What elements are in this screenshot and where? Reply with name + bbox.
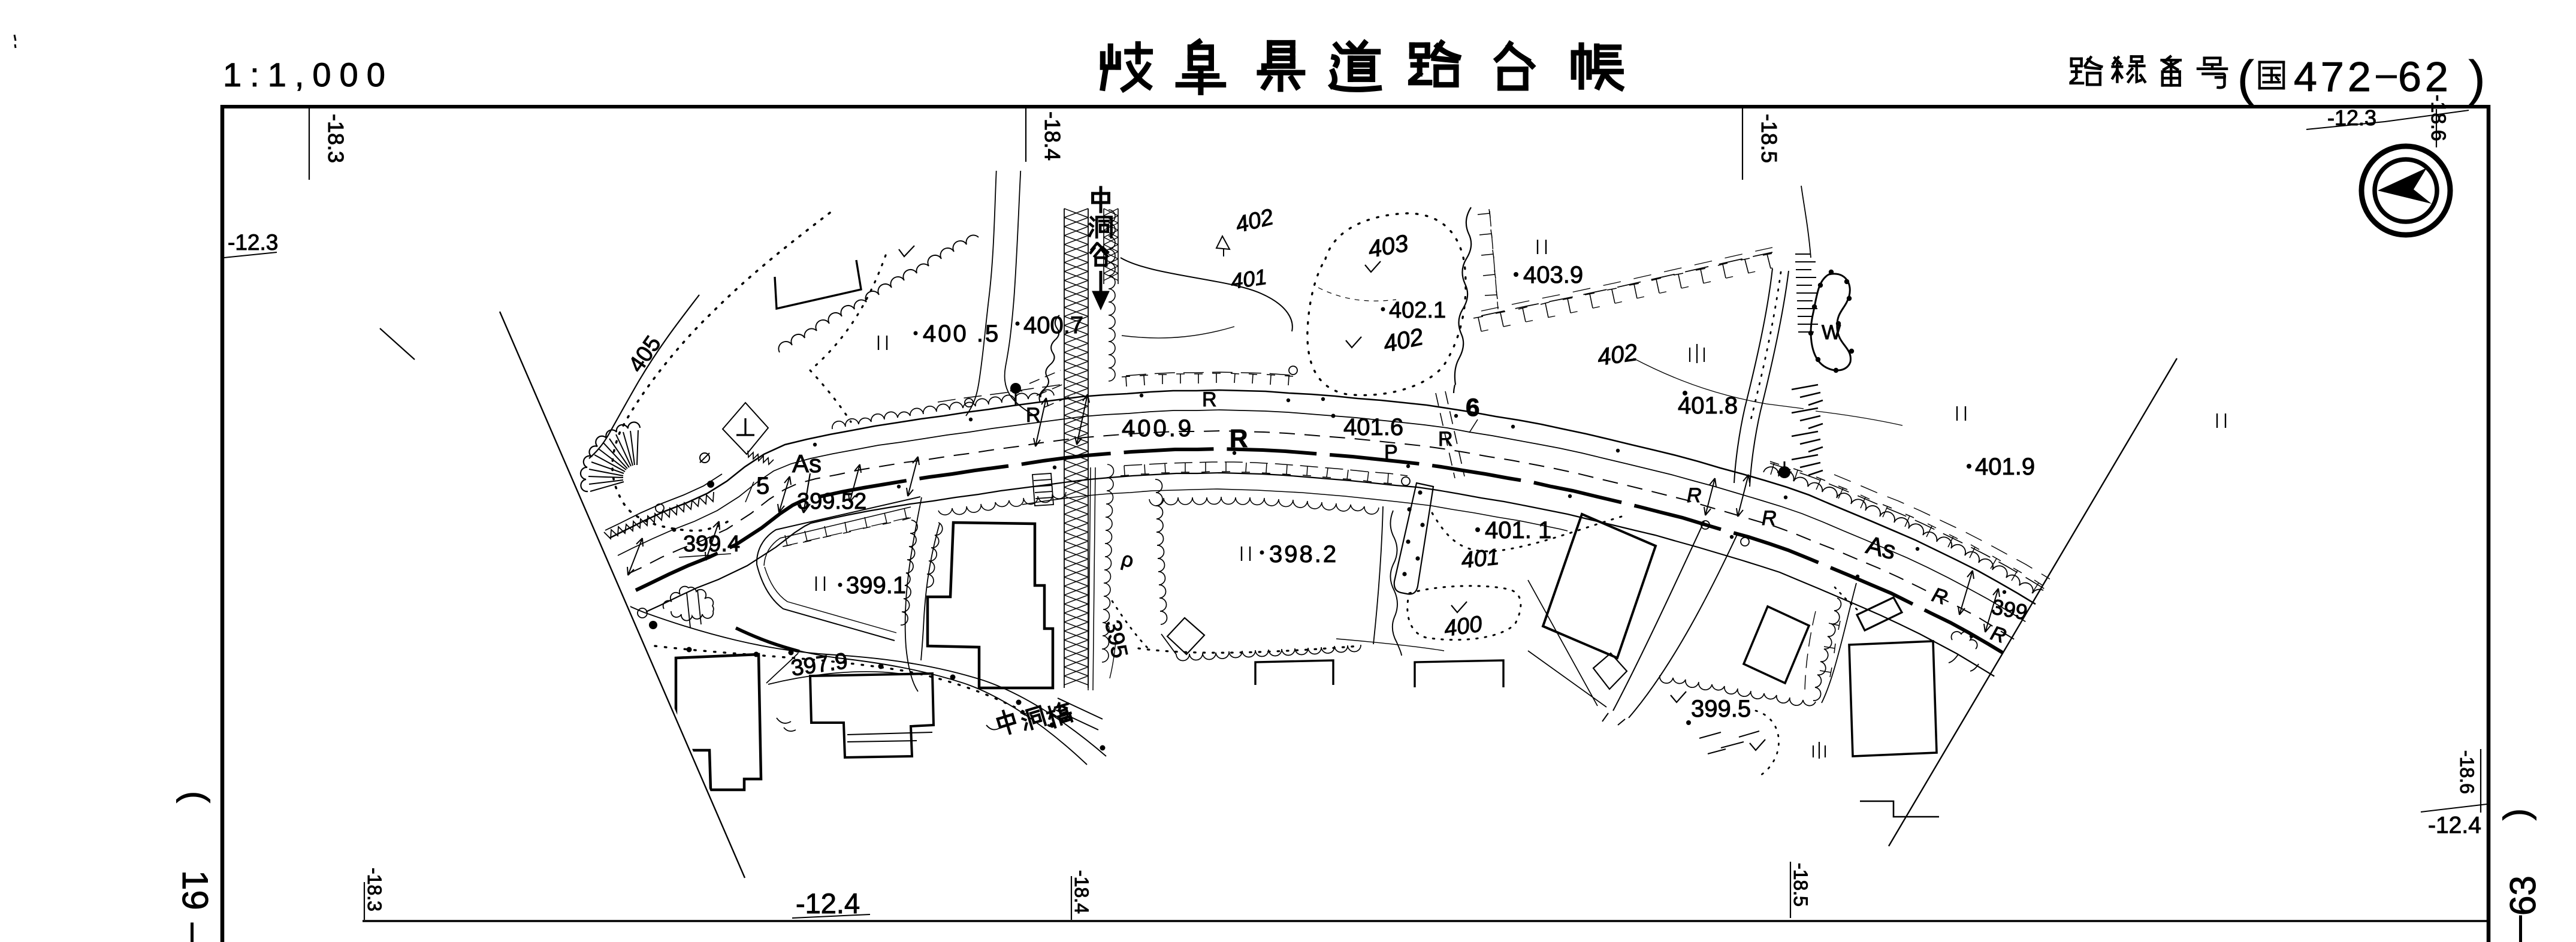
svg-text:401. 1: 401. 1 bbox=[1485, 517, 1551, 544]
svg-text:-18.3: -18.3 bbox=[364, 868, 385, 911]
svg-text:R: R bbox=[1202, 388, 1217, 411]
svg-text:399.1: 399.1 bbox=[846, 572, 906, 599]
svg-text:As: As bbox=[792, 449, 822, 478]
svg-text:401: 401 bbox=[1460, 545, 1500, 573]
svg-text:-18.5: -18.5 bbox=[1757, 114, 1781, 163]
svg-text:-12.4: -12.4 bbox=[796, 887, 860, 919]
svg-text:472: 472 bbox=[2294, 53, 2375, 100]
svg-text:-18.4: -18.4 bbox=[1040, 111, 1065, 161]
svg-text:-18.5: -18.5 bbox=[1790, 863, 1811, 907]
svg-text:R: R bbox=[1687, 484, 1702, 507]
svg-text:401.8: 401.8 bbox=[1678, 393, 1738, 419]
svg-text:P: P bbox=[1384, 441, 1398, 464]
svg-text:(: ( bbox=[2237, 51, 2254, 105]
svg-text:-12.4: -12.4 bbox=[2428, 813, 2481, 838]
svg-text:—: — bbox=[2498, 916, 2538, 942]
svg-text:5: 5 bbox=[756, 473, 769, 499]
svg-text:R: R bbox=[1762, 507, 1777, 530]
svg-text:19: 19 bbox=[175, 870, 215, 910]
svg-text:-18.6: -18.6 bbox=[2456, 750, 2478, 794]
svg-text:): ) bbox=[2469, 51, 2485, 105]
svg-text:399.5: 399.5 bbox=[1691, 696, 1751, 722]
svg-text:-18.4: -18.4 bbox=[1071, 870, 1092, 914]
svg-text:403.9: 403.9 bbox=[1523, 262, 1583, 288]
svg-text:1:1,000: 1:1,000 bbox=[223, 56, 394, 93]
svg-text:402: 402 bbox=[1596, 339, 1639, 371]
svg-text:—: — bbox=[175, 923, 215, 942]
svg-text:401: 401 bbox=[1229, 264, 1268, 294]
svg-text:400.9: 400.9 bbox=[1122, 415, 1194, 442]
svg-text:63: 63 bbox=[2503, 875, 2543, 916]
svg-text:): ) bbox=[2496, 808, 2536, 820]
svg-text:-18.6: -18.6 bbox=[2427, 95, 2450, 141]
svg-text:-18.3: -18.3 bbox=[324, 114, 348, 163]
svg-text:R: R bbox=[1026, 404, 1041, 427]
svg-text:-12.3: -12.3 bbox=[2327, 105, 2376, 130]
svg-text:(: ( bbox=[176, 791, 216, 803]
svg-text:401.9: 401.9 bbox=[1975, 454, 2035, 480]
svg-text:400: 400 bbox=[1442, 611, 1484, 641]
svg-text:6: 6 bbox=[1466, 393, 1479, 421]
svg-text:401.6: 401.6 bbox=[1343, 414, 1403, 440]
svg-text:R: R bbox=[1230, 424, 1248, 452]
svg-text:402.1: 402.1 bbox=[1389, 298, 1446, 323]
svg-text:400 .5: 400 .5 bbox=[923, 321, 1000, 347]
svg-text:W: W bbox=[1822, 321, 1841, 344]
svg-text:400.7: 400.7 bbox=[1023, 312, 1083, 339]
svg-text:62: 62 bbox=[2398, 53, 2452, 100]
svg-text:398.2: 398.2 bbox=[1269, 541, 1338, 567]
svg-text:-12.3: -12.3 bbox=[228, 230, 278, 255]
svg-text:R: R bbox=[1438, 428, 1453, 451]
